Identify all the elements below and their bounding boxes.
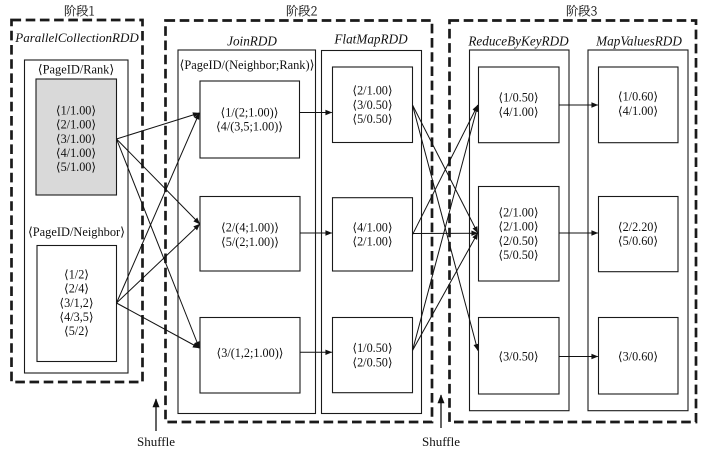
svg-text:⟨4/1.00⟩: ⟨4/1.00⟩ (618, 104, 658, 118)
svg-text:Shuffle: Shuffle (137, 434, 175, 449)
svg-text:JoinRDD: JoinRDD (227, 34, 277, 49)
svg-text:ReduceByKeyRDD: ReduceByKeyRDD (467, 34, 569, 49)
svg-text:FlatMapRDD: FlatMapRDD (333, 32, 408, 47)
svg-text:⟨1/1.00⟩: ⟨1/1.00⟩ (56, 103, 96, 117)
svg-text:⟨1/0.50⟩: ⟨1/0.50⟩ (498, 91, 538, 105)
svg-text:⟨2/1.00⟩: ⟨2/1.00⟩ (498, 220, 538, 234)
svg-text:⟨3/0.50⟩: ⟨3/0.50⟩ (352, 98, 392, 112)
svg-text:⟨4/(3,5;1.00)⟩: ⟨4/(3,5;1.00)⟩ (216, 120, 283, 134)
svg-text:ParallelCollectionRDD: ParallelCollectionRDD (14, 30, 139, 45)
svg-text:⟨5/0.50⟩: ⟨5/0.50⟩ (352, 112, 392, 126)
svg-text:MapValuesRDD: MapValuesRDD (595, 34, 682, 49)
svg-text:⟨2/(4;1.00)⟩: ⟨2/(4;1.00)⟩ (221, 221, 279, 235)
svg-text:⟨5/(2;1.00)⟩: ⟨5/(2;1.00)⟩ (221, 235, 279, 249)
svg-text:⟨4/3,5⟩: ⟨4/3,5⟩ (59, 310, 93, 324)
svg-text:⟨3/0.60⟩: ⟨3/0.60⟩ (618, 350, 658, 364)
svg-text:⟨3/1.00⟩: ⟨3/1.00⟩ (56, 132, 96, 146)
svg-text:⟨3/1,2⟩: ⟨3/1,2⟩ (59, 296, 93, 310)
svg-text:⟨2/2.20⟩: ⟨2/2.20⟩ (618, 220, 658, 234)
svg-text:⟨2/0.50⟩: ⟨2/0.50⟩ (498, 234, 538, 248)
svg-text:⟨5/0.60⟩: ⟨5/0.60⟩ (618, 234, 658, 248)
svg-text:⟨5/1.00⟩: ⟨5/1.00⟩ (56, 160, 96, 174)
svg-text:⟨1/0.50⟩: ⟨1/0.50⟩ (352, 341, 392, 355)
svg-text:⟨PageID/(Neighbor;Rank)⟩: ⟨PageID/(Neighbor;Rank)⟩ (180, 58, 315, 72)
svg-text:⟨4/1.00⟩: ⟨4/1.00⟩ (498, 105, 538, 119)
svg-text:⟨2/4⟩: ⟨2/4⟩ (64, 282, 89, 296)
svg-text:⟨2/1.00⟩: ⟨2/1.00⟩ (498, 205, 538, 219)
svg-text:⟨3/0.50⟩: ⟨3/0.50⟩ (498, 350, 538, 364)
svg-text:⟨PageID/Rank⟩: ⟨PageID/Rank⟩ (38, 63, 114, 77)
svg-text:⟨2/1.00⟩: ⟨2/1.00⟩ (56, 118, 96, 132)
svg-text:⟨4/1.00⟩: ⟨4/1.00⟩ (56, 146, 96, 160)
svg-text:⟨5/2⟩: ⟨5/2⟩ (64, 324, 89, 338)
svg-text:⟨1/0.60⟩: ⟨1/0.60⟩ (618, 90, 658, 104)
svg-text:⟨2/1.00⟩: ⟨2/1.00⟩ (352, 84, 392, 98)
svg-text:⟨2/1.00⟩: ⟨2/1.00⟩ (352, 235, 392, 249)
svg-text:⟨PageID/Neighbor⟩: ⟨PageID/Neighbor⟩ (28, 225, 125, 239)
svg-text:Shuffle: Shuffle (422, 434, 460, 449)
svg-text:⟨5/0.50⟩: ⟨5/0.50⟩ (498, 248, 538, 262)
svg-text:⟨4/1.00⟩: ⟨4/1.00⟩ (352, 220, 392, 234)
svg-text:⟨1/2⟩: ⟨1/2⟩ (64, 267, 89, 281)
svg-text:⟨2/0.50⟩: ⟨2/0.50⟩ (352, 355, 392, 369)
svg-text:⟨3/(1,2;1.00)⟩: ⟨3/(1,2;1.00)⟩ (216, 346, 283, 360)
svg-text:⟨1/(2;1.00)⟩: ⟨1/(2;1.00)⟩ (221, 105, 279, 119)
